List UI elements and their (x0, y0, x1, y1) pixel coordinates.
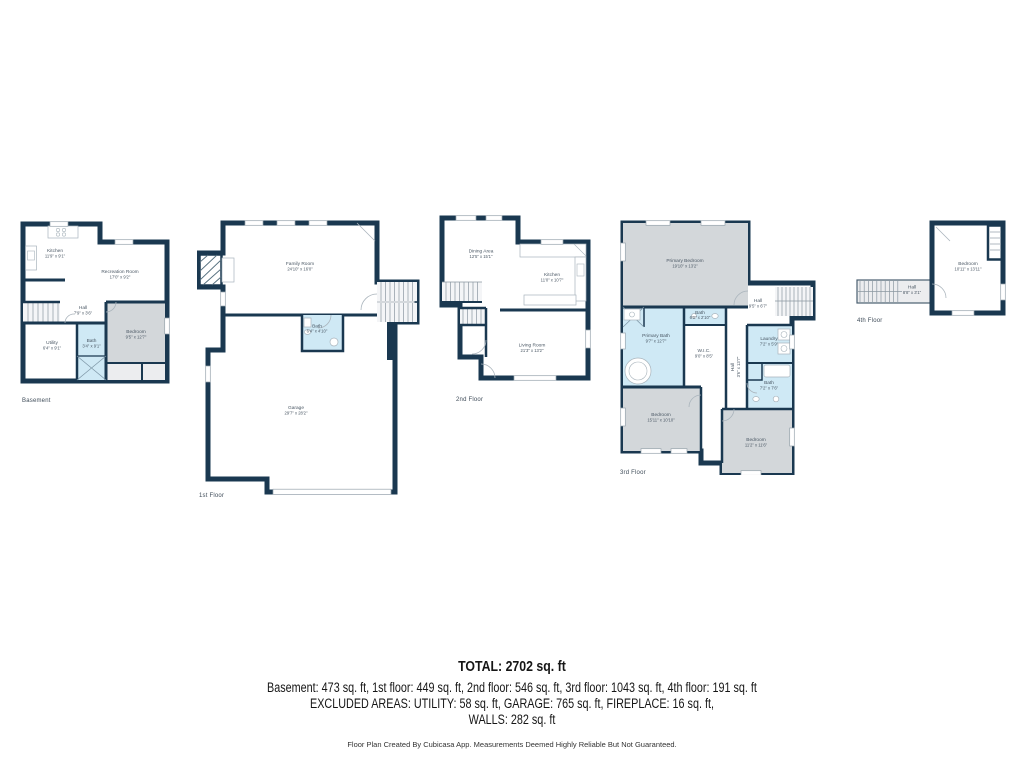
room-dims-label: 24'10" x 16'0" (287, 267, 313, 272)
room-dims-label: 21'3" x 13'2" (521, 348, 544, 353)
corner-door (936, 227, 950, 241)
wall-mass (387, 322, 395, 360)
vertical-hall-label: Hall 3'6" x 13'7" (730, 356, 741, 377)
summary-disclaimer: Floor Plan Created By Cubicasa App. Meas… (0, 740, 1024, 749)
room-dims-label: 11'9" x 9'1" (45, 254, 66, 259)
interior-wall (460, 325, 486, 357)
door-arc (361, 294, 377, 310)
room-dims-label: 9'5" x 6'7" (749, 304, 768, 309)
kitchen-counter-icon (26, 226, 79, 270)
room-dims-label: 17'0" x 9'2" (110, 275, 131, 280)
room-dims-label: 3'4" x 9'1" (82, 344, 101, 349)
room-dims-label: 6'4" x 9'1" (43, 346, 62, 351)
fireplace-icon (200, 255, 235, 286)
stairs (377, 282, 417, 322)
stairs (775, 287, 813, 316)
room-dims-label: 7'2" x 7'6" (760, 386, 779, 391)
room-dims-label: 15'11" x 10'10" (647, 418, 675, 423)
room-dims-label: 7'2" x 5'9" (760, 342, 779, 347)
room-dims-label: 9'7" x 12'7" (646, 339, 667, 344)
basement-bath-area (77, 324, 106, 380)
door-arc (472, 340, 486, 354)
room-dims-label: 10'11" x 13'11" (954, 267, 982, 272)
floor-label-3rd: 3rd Floor (620, 470, 646, 476)
stairs (23, 302, 60, 323)
garage-door (273, 489, 391, 494)
fourth-floor-room-labels: Bedroom 10'11" x 13'11" Hall 8'8" x 3'1" (903, 261, 982, 295)
room-dims-label: 6'4" x 4'10" (307, 329, 328, 334)
floorplan-2nd: Dining Area 12'5" x 15'1" Kitchen 11'0" … (438, 210, 608, 392)
room-dims-label: 6'0" x 2'10" (690, 315, 711, 320)
floorplan-basement: Kitchen 11'9" x 9'1" Recreation Room 17'… (20, 218, 175, 386)
floor-label-2nd: 2nd Floor (456, 397, 483, 403)
summary-floor-areas: Basement: 473 sq. ft, 1st floor: 449 sq.… (102, 680, 921, 695)
room-dims-label: 29'7" x 28'2" (285, 411, 308, 416)
summary-walls-area: WALLS: 282 sq. ft (102, 712, 921, 727)
room-dims-label: 3'6" x 13'7" (736, 356, 741, 377)
floorplan-sheet: Kitchen 11'9" x 9'1" Recreation Room 17'… (0, 0, 1024, 768)
floor-label-basement: Basement (22, 398, 51, 404)
floorplan-1st: Family Room 24'10" x 16'0" Bath 6'4" x 4… (197, 216, 422, 498)
room-dims-label: 9'5" x 12'7" (126, 335, 147, 340)
summary-total: TOTAL: 2702 sq. ft (77, 659, 947, 675)
room-dims-label: 8'8" x 3'1" (903, 290, 922, 295)
floor-label-4th: 4th Floor (857, 318, 882, 324)
room-dims-label: 12'5" x 15'1" (470, 254, 493, 259)
floorplan-3rd: Primary Bedroom 19'10" x 13'2" Hall 9'5"… (616, 213, 821, 475)
room-dims-label: 7'9" x 3'6" (74, 311, 93, 316)
room-dims-label: 19'10" x 13'2" (672, 264, 698, 269)
room-dims-label: 11'2" x 11'6" (745, 443, 768, 448)
floor-label-1st: 1st Floor (199, 493, 224, 499)
room-dims-label: 11'0" x 10'7" (541, 278, 564, 283)
summary-excluded-areas: EXCLUDED AREAS: UTILITY: 58 sq. ft, GARA… (102, 696, 921, 711)
floorplan-4th: Bedroom 10'11" x 13'11" Hall 8'8" x 3'1" (852, 218, 1012, 318)
corner-door (357, 223, 375, 241)
room-dims-label: 9'0" x 8'5" (695, 354, 714, 359)
